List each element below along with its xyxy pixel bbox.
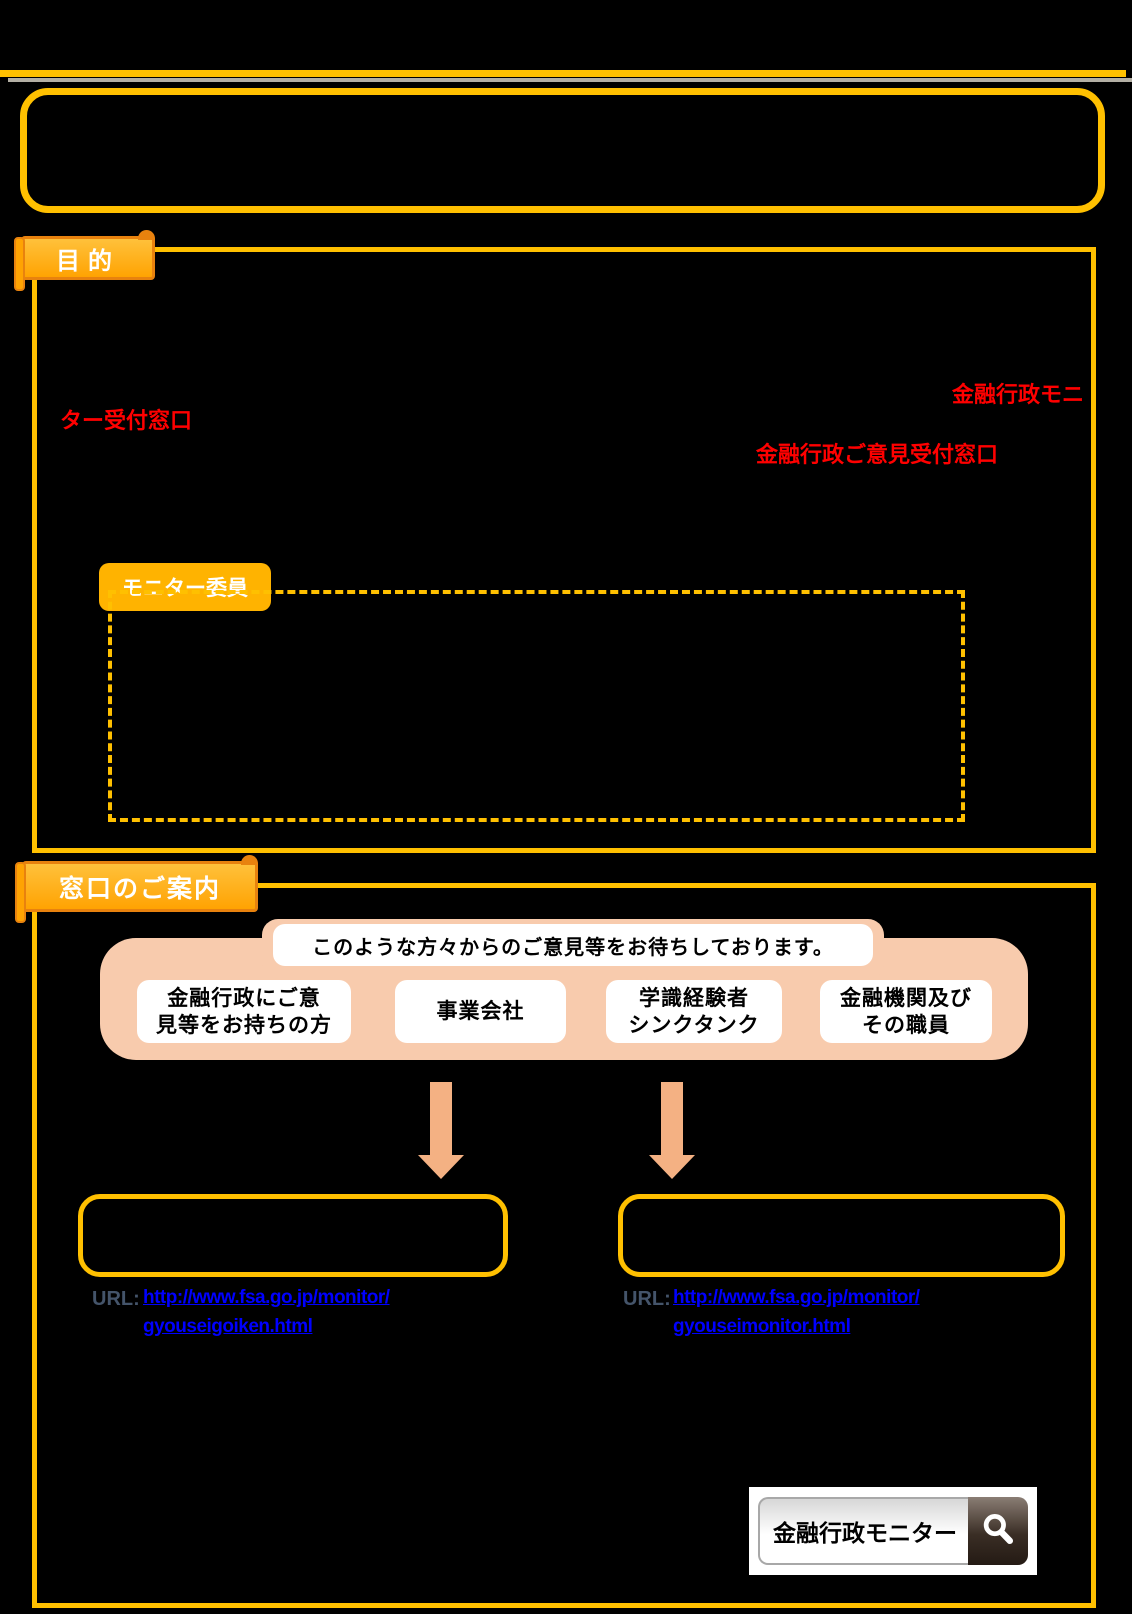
top-accent-line [0, 70, 1126, 77]
red-highlight-monitor-desk-part2: ター受付窓口 [60, 403, 192, 435]
audience-box-opinion-holders: 金融行政にご意 見等をお持ちの方 [137, 980, 351, 1043]
search-query-text: 金融行政モニター [773, 1514, 957, 1548]
top-shadow-line [8, 78, 1132, 82]
opinion-url-link-line2[interactable]: gyouseigoiken.html [143, 1316, 312, 1338]
audience-line: その職員 [862, 1012, 950, 1039]
search-input[interactable]: 金融行政モニター [758, 1497, 970, 1565]
search-icon [979, 1510, 1017, 1553]
audience-banner-text: このような方々からのご意見等をお待ちしております。 [312, 931, 834, 960]
red-highlight-monitor-desk-part1: 金融行政モニ [952, 377, 1084, 409]
monitor-committee-dashed-box [108, 590, 965, 822]
purpose-ribbon-label: 目的 [56, 241, 120, 276]
down-arrow-right [661, 1082, 683, 1155]
guide-ribbon: 窓口のご案内 [22, 861, 258, 912]
url-label-left: URL: [92, 1288, 140, 1311]
audience-line: 学識経験者 [639, 985, 749, 1012]
audience-line: シンクタンク [628, 1012, 759, 1039]
audience-line: 金融行政にご意 [167, 985, 321, 1012]
monitor-url-link-line2[interactable]: gyouseimonitor.html [673, 1316, 850, 1338]
down-arrow-left-head [418, 1155, 464, 1179]
flyer-page: 目的 金融行政モニ ター受付窓口 金融行政ご意見受付窓口 モニター委員 窓口のご… [0, 0, 1132, 1614]
audience-line: 事業会社 [437, 998, 525, 1025]
search-button[interactable] [968, 1497, 1028, 1565]
audience-box-business-companies: 事業会社 [395, 980, 566, 1043]
audience-box-experts-thinktank: 学識経験者 シンクタンク [606, 980, 782, 1043]
purpose-ribbon: 目的 [21, 236, 155, 280]
red-highlight-opinion-desk: 金融行政ご意見受付窓口 [756, 437, 998, 469]
audience-line: 金融機関及び [840, 985, 972, 1012]
url-label-right: URL: [623, 1288, 671, 1311]
audience-banner: このような方々からのご意見等をお待ちしております。 [273, 924, 873, 966]
guide-ribbon-label: 窓口のご案内 [59, 869, 221, 905]
opinion-window-box [78, 1194, 508, 1277]
down-arrow-right-head [649, 1155, 695, 1179]
monitor-window-box [618, 1194, 1065, 1277]
down-arrow-left [430, 1082, 452, 1155]
audience-line: 見等をお持ちの方 [156, 1012, 332, 1039]
monitor-url-link-line1[interactable]: http://www.fsa.go.jp/monitor/ [673, 1287, 920, 1309]
title-frame [20, 88, 1105, 213]
opinion-url-link-line1[interactable]: http://www.fsa.go.jp/monitor/ [143, 1287, 390, 1309]
audience-box-financial-institutions: 金融機関及び その職員 [820, 980, 992, 1043]
